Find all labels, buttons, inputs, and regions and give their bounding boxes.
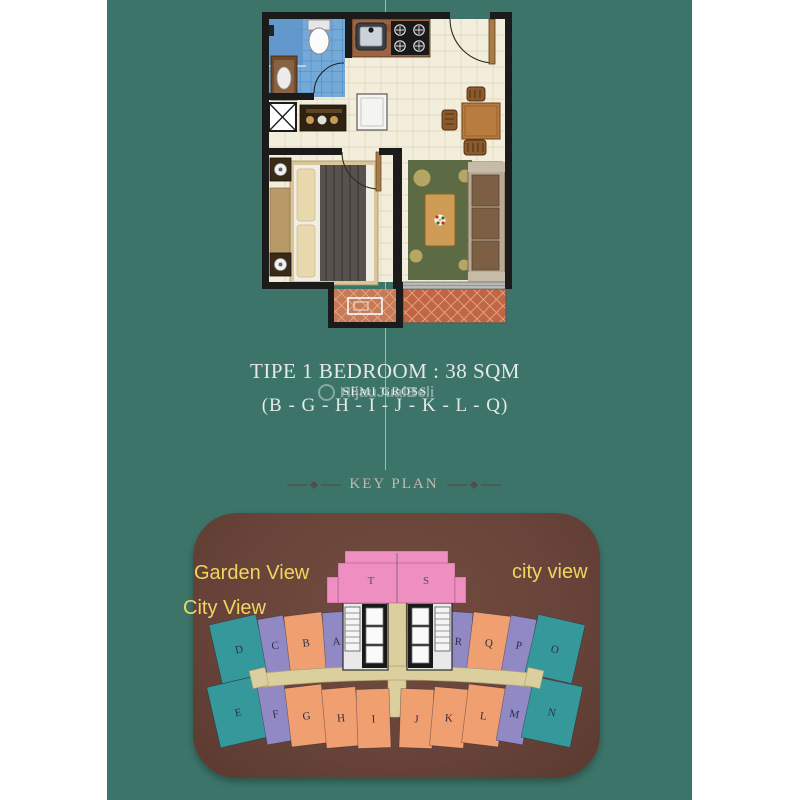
balcony <box>403 289 506 323</box>
keyplan-unit-J: J <box>399 688 434 748</box>
tower-unit-S: S <box>423 575 429 587</box>
headboard <box>270 188 290 254</box>
elevator-shaft-right <box>408 604 433 668</box>
shower-fixture <box>269 25 274 36</box>
stove <box>391 21 429 55</box>
watermark-text: HijauJualBeli <box>340 384 434 401</box>
toilet <box>308 20 330 54</box>
stairs-left <box>345 607 360 651</box>
ornament-right-icon <box>447 480 501 490</box>
tower-unit-T: T <box>368 575 375 587</box>
dresser <box>300 105 346 131</box>
svg-text:B: B <box>302 637 311 650</box>
label-city-view-right: city view <box>512 561 588 584</box>
shaft-box <box>269 103 296 131</box>
tower-top-block <box>327 551 466 603</box>
kitchen-counter <box>352 19 430 57</box>
svg-text:A: A <box>332 636 341 649</box>
ornament-left-icon <box>287 480 341 490</box>
svg-text:Q: Q <box>484 637 493 650</box>
label-garden-view: Garden View <box>194 562 309 585</box>
nightstand-bottom <box>270 253 291 276</box>
ac-ledge <box>334 289 396 322</box>
dining-table <box>462 103 500 139</box>
floorplan-drawing <box>262 8 512 332</box>
keyplan-unit-B: B <box>284 612 329 673</box>
svg-text:K: K <box>444 712 453 725</box>
coffee-table <box>425 194 455 246</box>
refrigerator <box>357 94 387 130</box>
svg-text:G: G <box>302 710 311 723</box>
label-city-view-left: City View <box>183 597 266 620</box>
stairs-right <box>435 607 450 651</box>
bathroom <box>269 19 345 100</box>
elevator-shaft-left <box>362 604 387 668</box>
plan-title: TIPE 1 BEDROOM : 38 SQM <box>0 359 770 384</box>
sofa <box>468 162 505 282</box>
keyplan-heading: KEY PLAN <box>0 476 788 493</box>
keyplan-drawing: DCBARQPOEFGHIJKLMN <box>193 513 600 778</box>
balcony-sliding-door <box>402 282 506 289</box>
keyplan-unit-I: I <box>356 688 391 748</box>
nightstand-top <box>270 158 291 181</box>
floorplan <box>262 8 512 332</box>
svg-text:H: H <box>337 712 346 725</box>
dining-chair <box>442 110 457 130</box>
keyplan-unit-H: H <box>321 687 360 749</box>
keyplan-heading-text: KEY PLAN <box>349 476 438 493</box>
listing-image: TIPE 1 BEDROOM : 38 SQM SEMI GROSS (B - … <box>0 0 800 800</box>
watermark-logo-icon <box>318 384 335 401</box>
kitchen-sink <box>356 23 386 50</box>
watermark: HijauJualBeli <box>318 384 434 401</box>
keyplan-panel: DCBARQPOEFGHIJKLMN <box>193 513 600 778</box>
